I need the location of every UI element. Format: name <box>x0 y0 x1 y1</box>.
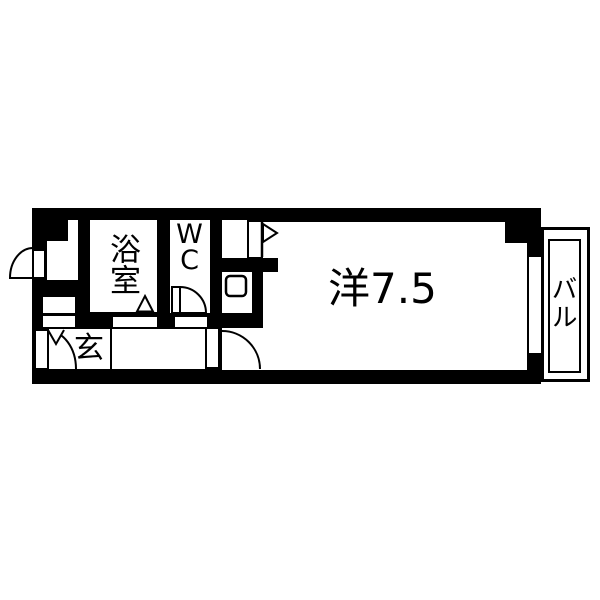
meterbox-door-arc <box>10 248 33 278</box>
balcony-label: バル <box>549 275 575 331</box>
sink-square <box>226 276 246 296</box>
entrance-label: 玄 <box>74 334 104 364</box>
symbols-overlay <box>0 0 600 600</box>
wc-label: WC <box>176 219 203 271</box>
main-room-label: 洋7.5 <box>328 268 437 310</box>
flag-triangle <box>263 224 277 242</box>
meterbox-door-panel <box>33 250 45 278</box>
genkan-door-panel <box>35 330 48 369</box>
main-door-panel <box>206 328 219 368</box>
main-door-arc <box>222 331 260 369</box>
bath-fold-door-triangle <box>137 296 153 312</box>
floor-plan: 浴室 WC 玄 洋7.5 バル <box>0 0 600 600</box>
wc-door-arc <box>180 287 206 313</box>
bath-label: 浴室 <box>106 233 137 295</box>
wc-door-panel <box>172 287 180 313</box>
